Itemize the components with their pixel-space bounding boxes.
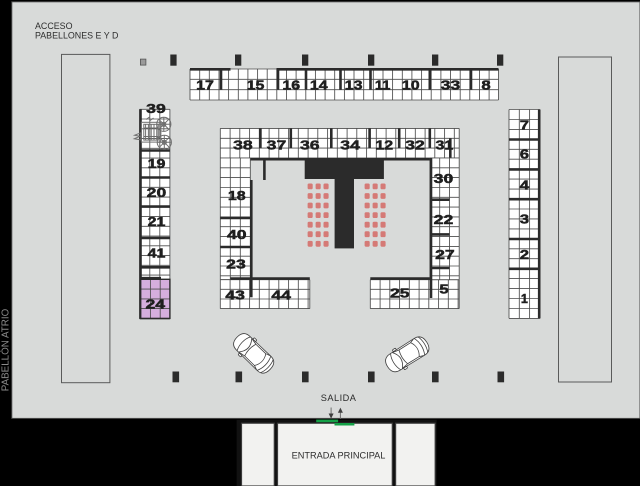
svg-text:18: 18 [228, 188, 246, 203]
svg-text:37: 37 [267, 137, 287, 152]
svg-text:5: 5 [439, 282, 448, 297]
svg-text:13: 13 [345, 77, 363, 92]
svg-text:19: 19 [148, 156, 166, 171]
svg-text:32: 32 [405, 137, 425, 152]
svg-text:17: 17 [196, 77, 214, 92]
svg-text:20: 20 [147, 185, 167, 200]
svg-text:PABELLÓN ATRIO: PABELLÓN ATRIO [1, 308, 12, 391]
svg-text:PABELLONES E Y D: PABELLONES E Y D [35, 31, 118, 41]
svg-text:43: 43 [225, 288, 245, 303]
svg-text:4: 4 [520, 177, 530, 192]
svg-text:34: 34 [340, 137, 361, 152]
svg-text:11: 11 [375, 77, 391, 92]
svg-text:15: 15 [247, 77, 265, 92]
svg-text:10: 10 [402, 77, 420, 92]
svg-text:12: 12 [375, 137, 393, 152]
svg-text:21: 21 [148, 214, 166, 229]
svg-text:23: 23 [226, 257, 246, 272]
svg-text:8: 8 [481, 77, 490, 92]
svg-text:41: 41 [148, 246, 166, 261]
svg-text:33: 33 [441, 77, 461, 92]
svg-text:44: 44 [271, 288, 292, 303]
svg-text:16: 16 [282, 77, 300, 92]
svg-text:39: 39 [146, 101, 166, 116]
svg-text:2: 2 [520, 247, 529, 262]
svg-text:22: 22 [434, 212, 454, 227]
svg-text:30: 30 [434, 171, 454, 186]
svg-text:27: 27 [435, 247, 455, 262]
svg-text:1: 1 [521, 291, 528, 306]
svg-text:14: 14 [310, 77, 329, 92]
svg-text:6: 6 [520, 147, 529, 162]
svg-text:36: 36 [300, 137, 320, 152]
svg-text:7: 7 [520, 118, 529, 133]
svg-text:3: 3 [520, 212, 529, 227]
svg-text:40: 40 [227, 227, 247, 242]
svg-text:38: 38 [233, 137, 253, 152]
svg-text:SALIDA: SALIDA [321, 393, 357, 403]
svg-text:31: 31 [436, 137, 454, 152]
svg-text:ENTRADA PRINCIPAL: ENTRADA PRINCIPAL [292, 450, 386, 460]
svg-text:25: 25 [390, 286, 410, 301]
svg-text:24: 24 [146, 296, 167, 311]
